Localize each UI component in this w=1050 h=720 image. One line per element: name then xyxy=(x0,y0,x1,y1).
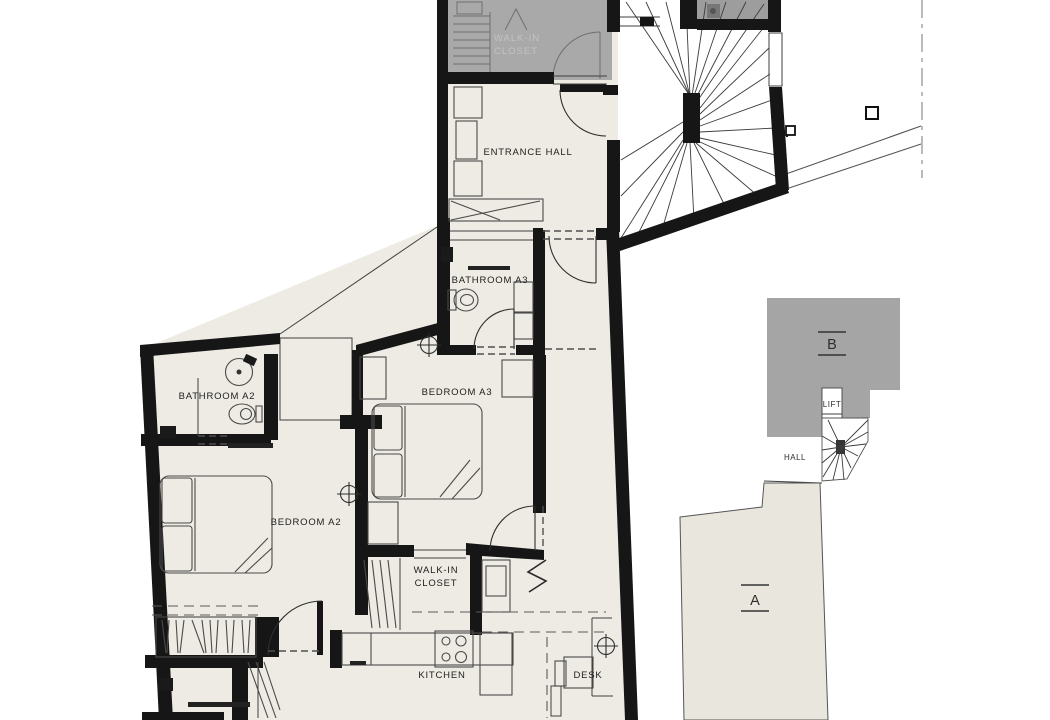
floor-plan-drawing: WALK-IN CLOSET B LIFT HALL xyxy=(0,0,1050,720)
lift-label: LIFT xyxy=(823,400,841,409)
floor-plan-canvas: WALK-IN CLOSET B LIFT HALL xyxy=(0,0,1050,720)
bathroom-a2-label: BATHROOM A2 xyxy=(179,391,256,402)
section-a-area: A xyxy=(680,483,828,720)
entrance-hall-label: ENTRANCE HALL xyxy=(483,147,572,158)
site-boundary-lines xyxy=(778,0,922,188)
closet2-label-1: WALK-IN xyxy=(414,565,459,576)
sink-icon xyxy=(158,678,173,691)
kitchen-label: KITCHEN xyxy=(418,670,465,681)
section-b-label: B xyxy=(827,337,837,353)
stair-marker xyxy=(786,126,795,135)
bedroom-a2-label: BEDROOM A2 xyxy=(271,517,342,528)
desk-label: DESK xyxy=(573,670,602,681)
section-a-label: A xyxy=(750,593,760,609)
hall-label: HALL xyxy=(784,453,806,462)
sink-icon xyxy=(441,247,453,262)
apartment-floor xyxy=(140,0,625,720)
bedroom-a3-label: BEDROOM A3 xyxy=(422,387,493,398)
closet-top-label-1: WALK-IN xyxy=(494,33,540,44)
walk-in-closet-top: WALK-IN CLOSET xyxy=(448,0,612,80)
closet2-label-2: CLOSET xyxy=(415,578,458,589)
spiral-stair-b xyxy=(822,418,868,481)
gray-room-top-right xyxy=(697,0,772,22)
bathroom-a3-label: BATHROOM A3 xyxy=(452,275,529,286)
radiator-icon xyxy=(160,426,176,438)
closet-top-label-2: CLOSET xyxy=(494,46,538,57)
site-marker-post xyxy=(866,107,878,119)
building-b-core: B LIFT HALL xyxy=(764,298,900,483)
